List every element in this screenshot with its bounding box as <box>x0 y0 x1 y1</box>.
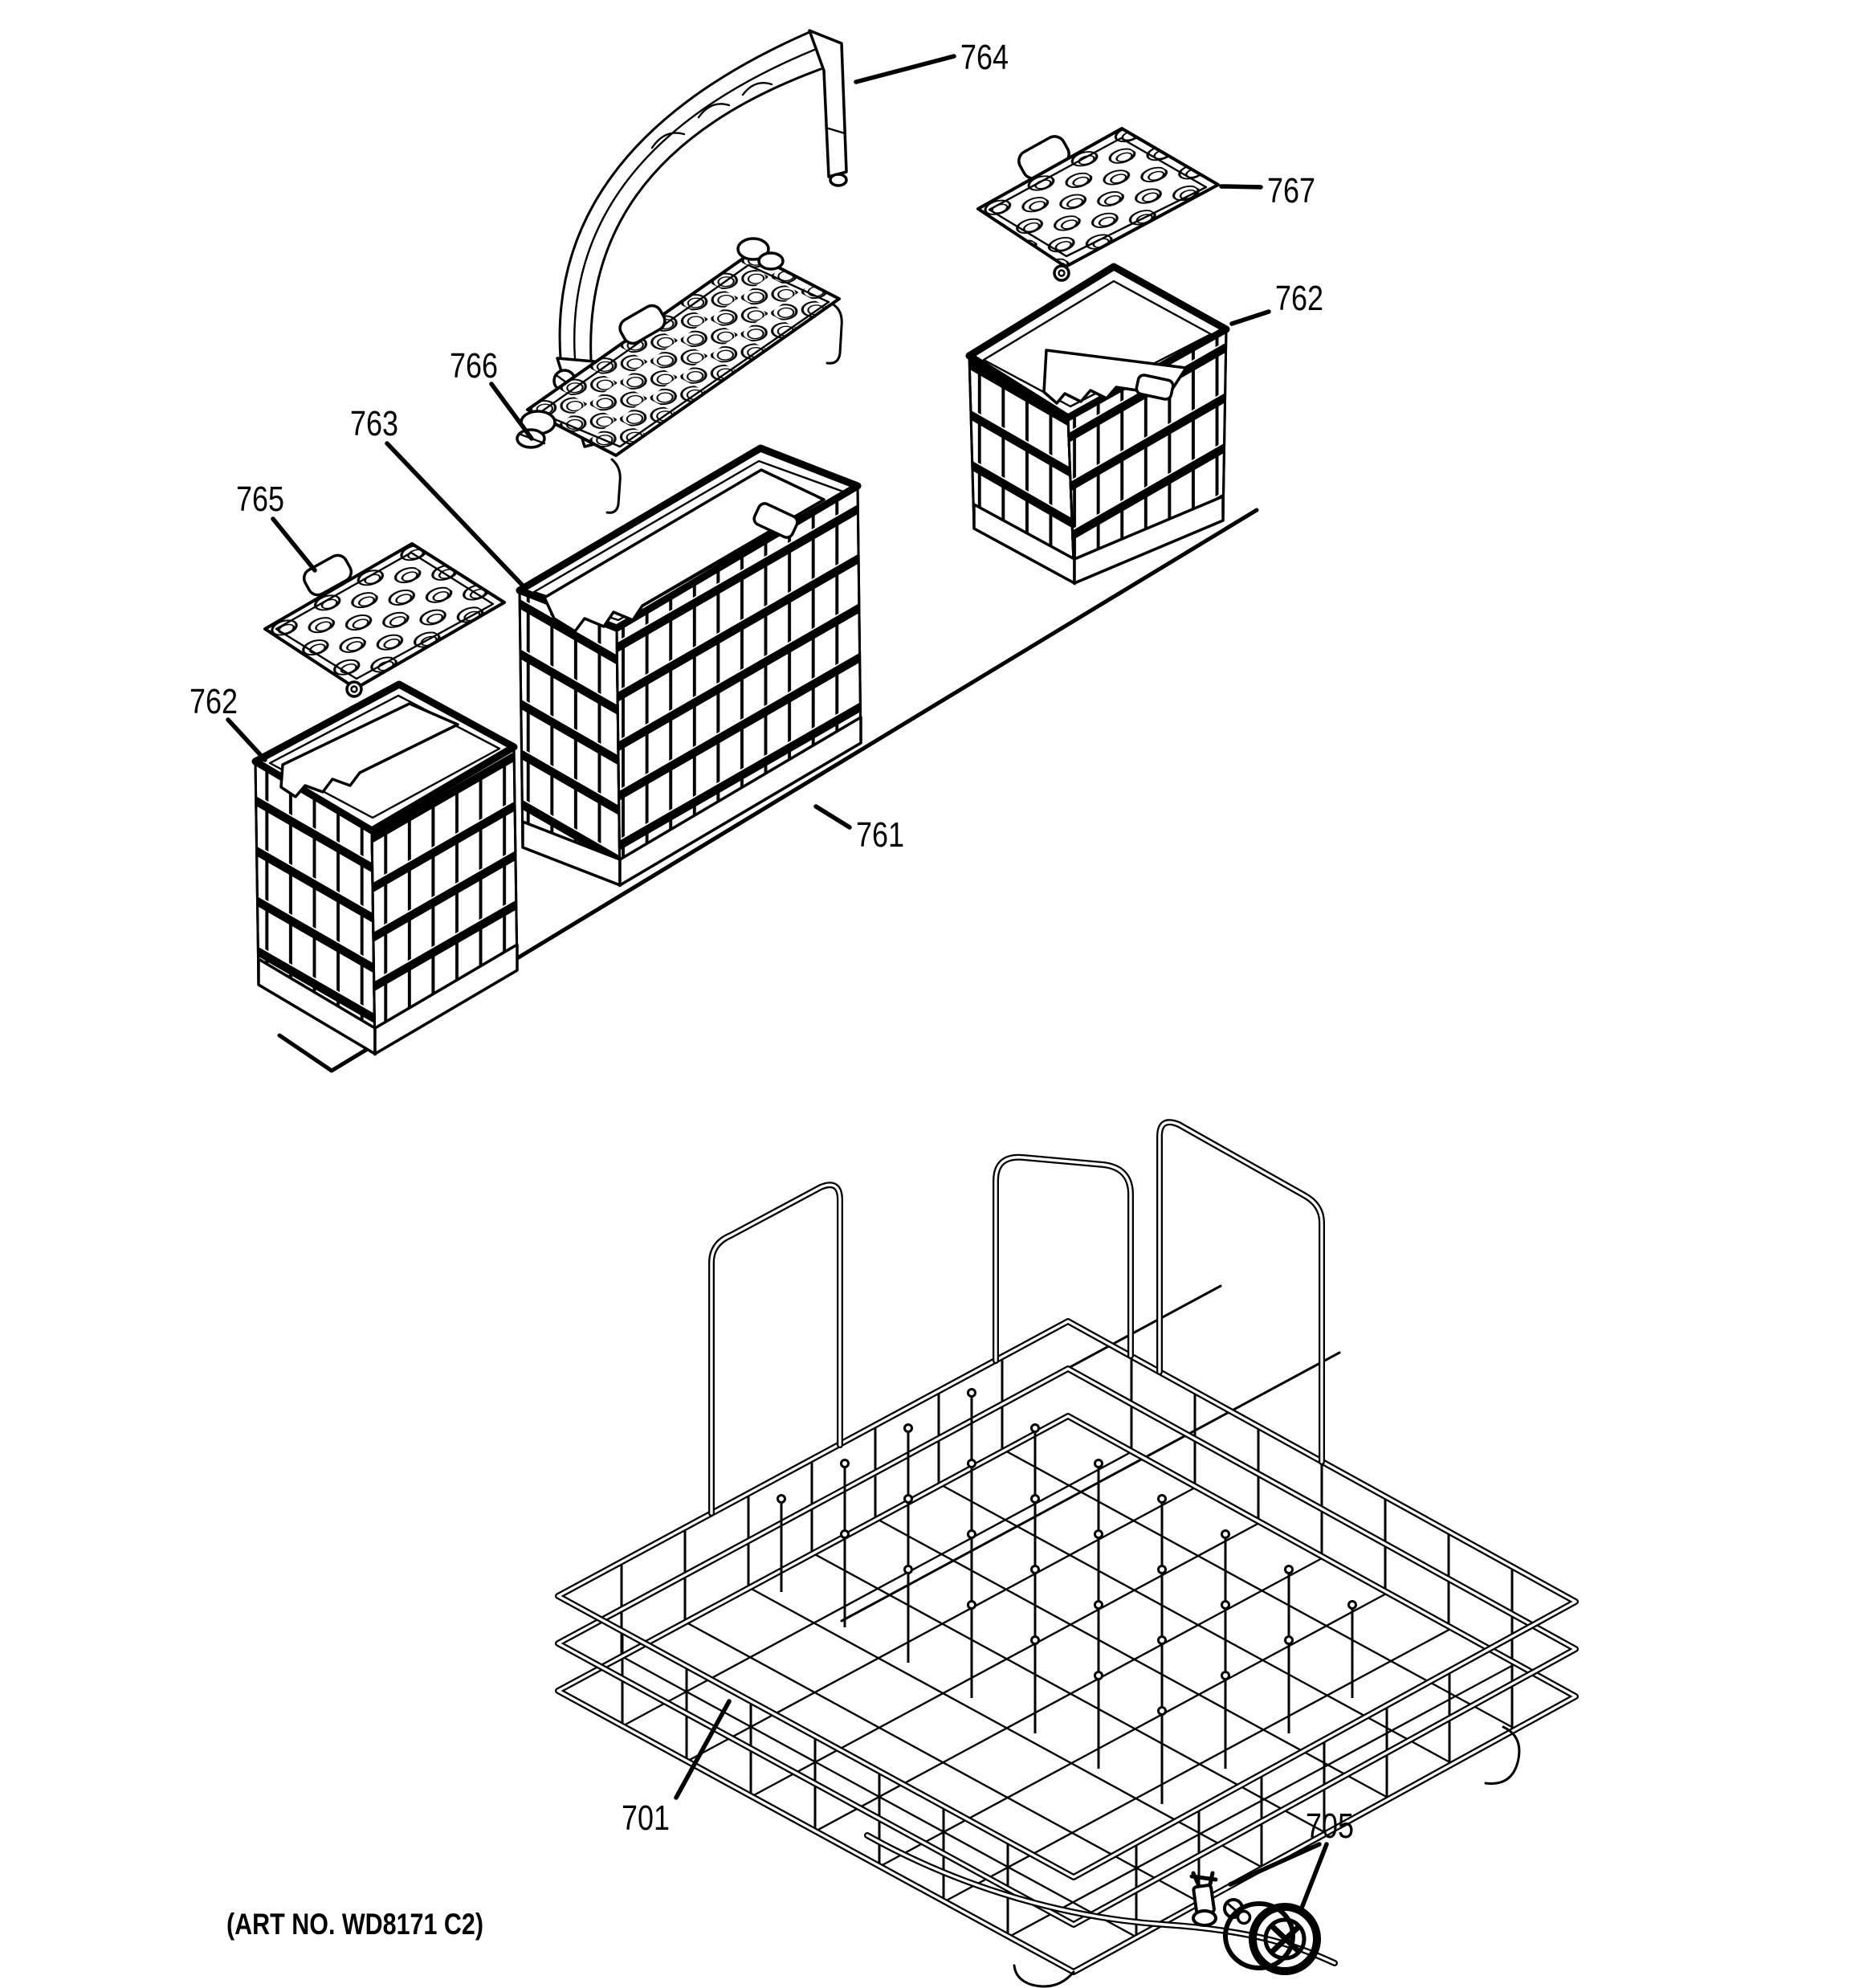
callout-label-764: 764 <box>960 38 1009 77</box>
callout-leader-762-left <box>228 720 265 760</box>
callout-leader-767 <box>1221 186 1261 187</box>
callout-label-705: 705 <box>1306 1806 1354 1846</box>
roller-assembly-705-drawing <box>1192 1873 1317 1971</box>
callout-leader-766 <box>491 384 532 439</box>
callout-label-767: 767 <box>1267 171 1315 210</box>
callout-leader-761 <box>816 806 850 827</box>
callout-label-762-right: 762 <box>1275 279 1323 318</box>
callout-label-761: 761 <box>856 815 904 855</box>
lower-rack-701-drawing <box>558 1122 1576 1986</box>
basket-762-left-drawing <box>255 684 517 1054</box>
callout-label-766: 766 <box>450 346 498 386</box>
lid-765-drawing <box>265 544 504 696</box>
callout-leader-764 <box>856 56 954 82</box>
art-number: (ART NO. WD8171 C2) <box>226 1908 483 1941</box>
callout-label-762-left: 762 <box>190 682 238 721</box>
silverware-basket-assembly-drawing <box>255 31 1257 1071</box>
callout-label-765: 765 <box>236 480 284 519</box>
basket-763-drawing <box>520 448 861 885</box>
callout-leader-765 <box>273 519 315 570</box>
callout-leader-705 <box>1230 1844 1319 1884</box>
diagram-page: 764767762766763765762761701705 (ART NO. … <box>0 0 1863 1988</box>
callout-leader-762-right <box>1232 312 1269 324</box>
rack-wall-posts <box>622 1354 1512 1937</box>
callout-label-701: 701 <box>622 1798 670 1838</box>
callout-label-763: 763 <box>350 404 398 443</box>
parts-diagram-canvas: 764767762766763765762761701705 (ART NO. … <box>0 0 1863 1988</box>
basket-762-right-drawing <box>969 267 1226 583</box>
lid-767-drawing <box>978 129 1218 280</box>
callout-leader-705-1 <box>1301 1844 1327 1910</box>
rack-base-grid <box>622 1449 1518 1937</box>
